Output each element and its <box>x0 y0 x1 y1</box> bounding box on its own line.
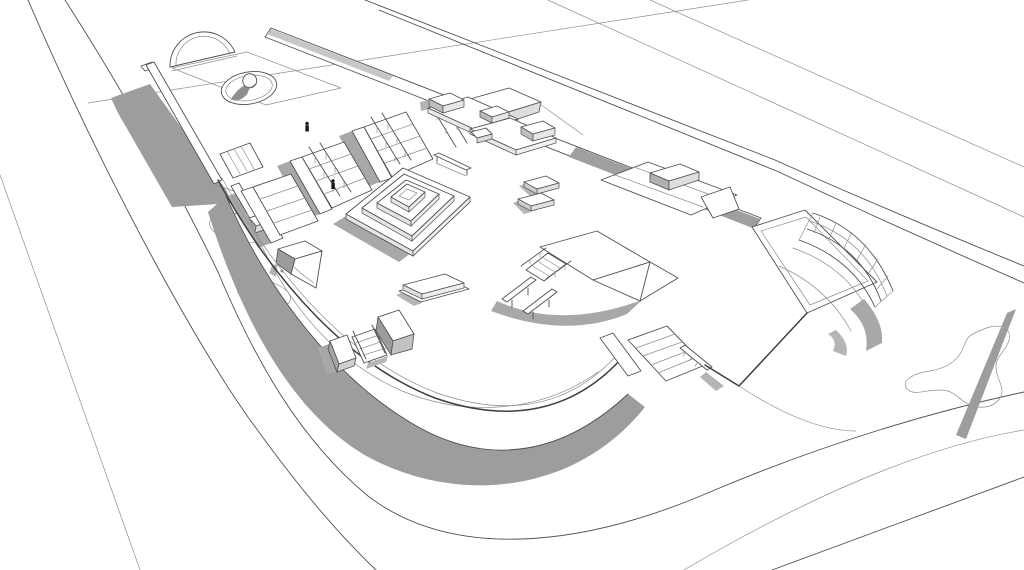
entry-blocks <box>318 310 414 375</box>
pad-right-edge <box>739 313 807 386</box>
bottom-street-line <box>684 430 1024 570</box>
top-street-curb-1 <box>365 0 1024 266</box>
model-viewport[interactable] <box>0 0 1024 570</box>
bottom-street-curb <box>772 477 1024 570</box>
figure-body <box>331 183 334 189</box>
figure-head <box>331 179 334 182</box>
flat-rail-bar <box>502 277 536 302</box>
lower-stairs <box>600 326 724 391</box>
street-bench <box>396 274 469 306</box>
bench-steps <box>513 176 559 214</box>
qp-shadow-soft <box>828 330 847 356</box>
quarter-dome <box>170 32 237 71</box>
corner-quarterpipe <box>752 210 893 356</box>
left-street-outer-line <box>0 175 140 570</box>
rail-bar <box>434 153 471 170</box>
render-canvas <box>0 0 1024 570</box>
ledge-shaded-face <box>267 29 393 81</box>
dome-base-line-2 <box>172 56 237 71</box>
ball-bowl <box>219 67 280 108</box>
funbox-shadow <box>491 300 642 326</box>
pad-edge <box>705 313 856 431</box>
small-quarterpipe <box>269 241 322 288</box>
top-street-line-1 <box>650 0 1024 167</box>
funbox <box>491 231 678 326</box>
qp-shadow <box>850 299 882 351</box>
dome-base-line <box>170 52 235 67</box>
apron-line <box>739 386 856 431</box>
top-street-curb-2 <box>379 10 1024 283</box>
small-stairs <box>220 143 263 178</box>
flat-rail <box>434 153 471 176</box>
figure-body <box>305 125 308 131</box>
figure-head <box>305 122 308 125</box>
deck-stair-cut <box>220 143 263 178</box>
